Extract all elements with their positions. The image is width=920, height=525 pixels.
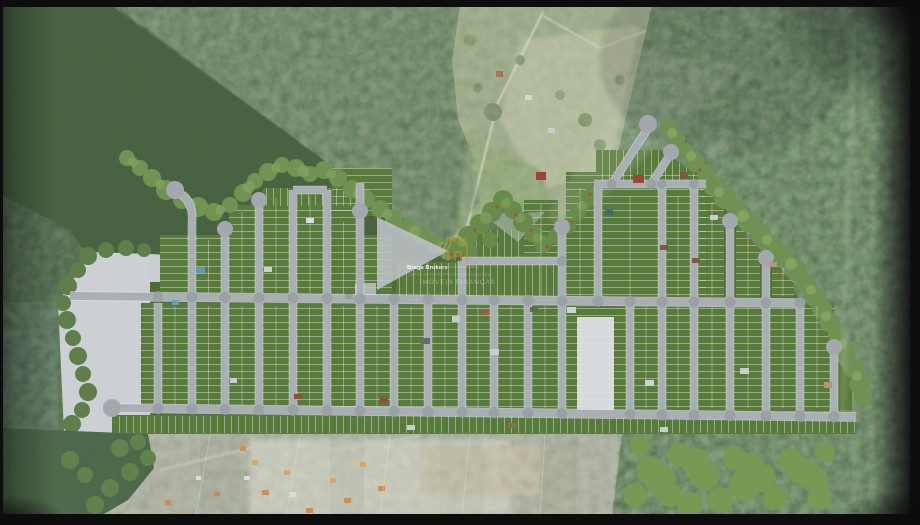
svg-text:Braga Brokers: Braga Brokers [407, 265, 448, 271]
svg-text:creci 00000-J compra e venda: creci 00000-J compra e venda [448, 273, 491, 277]
svg-text:IMÓVEIS FINANÇAS: IMÓVEIS FINANÇAS [420, 277, 496, 286]
svg-text:CNPJ 00.000.000/0001-00: CNPJ 00.000.000/0001-00 [409, 273, 448, 277]
svg-text:soluções imobiliárias: soluções imobiliárias [446, 265, 479, 269]
